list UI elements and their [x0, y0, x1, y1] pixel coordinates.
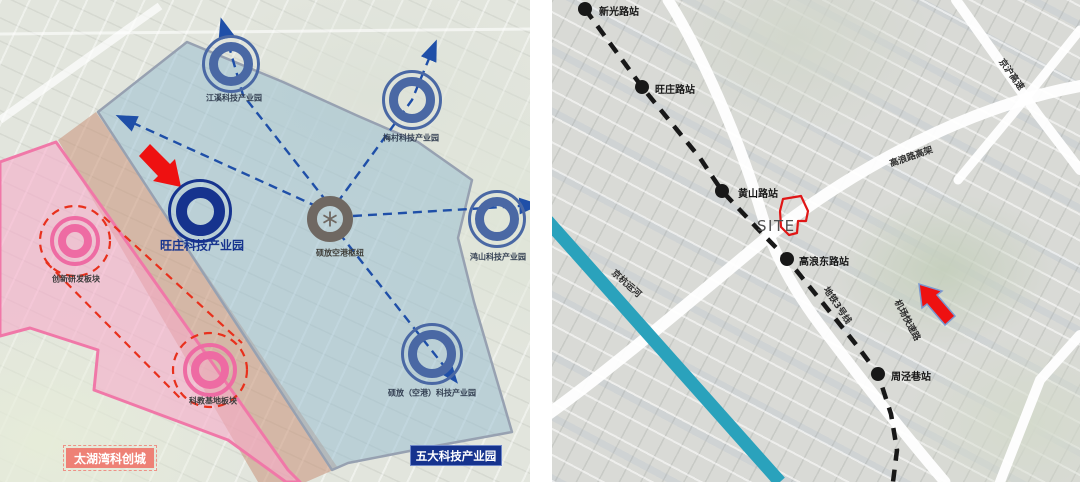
hub-label: 硕放空港枢纽 [316, 248, 364, 259]
block-label-innovation: 创新研发板块 [52, 274, 100, 285]
site-map-overlay [552, 0, 1080, 482]
block-ring-education [183, 343, 237, 397]
strategy-map-panel: 江溪科技产业园 梅村科技产业园 鸿山科技产业园 硕放（空港）科技产业园 旺庄科技… [0, 0, 530, 482]
block-ring-innovation [50, 216, 100, 266]
taihu-bay-badge: 太湖湾科创城 [66, 448, 154, 468]
station-dot-zhoujingxiang [871, 367, 885, 381]
park-ring-inner [475, 197, 519, 241]
park-label-hongshan: 鸿山科技产业园 [470, 252, 526, 263]
park-ring-wangzhuang [168, 179, 232, 243]
block-label-education: 科教基地板块 [189, 396, 237, 407]
block-ring-inner [58, 224, 92, 258]
two-panel-planning-map: 江溪科技产业园 梅村科技产业园 鸿山科技产业园 硕放（空港）科技产业园 旺庄科技… [0, 0, 1080, 482]
site-context-map-panel: 新光路站 旺庄路站 黄山路站 高浪东路站 周泾巷站 SITE 京杭运河 地铁3号… [552, 0, 1080, 482]
red-pointer-arrow [919, 284, 955, 325]
base-road [0, 29, 530, 34]
park-ring-inner [389, 77, 435, 123]
station-label-wangzhuang: 旺庄路站 [655, 81, 695, 96]
station-dot-gaolangdong [780, 252, 794, 266]
park-ring-inner [209, 42, 253, 86]
road-secondary [1000, 335, 1080, 482]
park-ring-inner [408, 330, 456, 378]
park-ring-jiangxi [202, 35, 260, 93]
park-label-meicun: 梅村科技产业园 [383, 133, 439, 144]
road-secondary [958, 30, 1080, 180]
park-label-shuofang: 硕放（空港）科技产业园 [388, 388, 476, 399]
park-ring-meicun [382, 70, 442, 130]
park-label-jiangxi: 江溪科技产业园 [206, 93, 262, 104]
park-ring-inner [176, 187, 225, 236]
station-label-huangshan: 黄山路站 [738, 185, 778, 200]
station-dot-huangshan [715, 184, 729, 198]
station-label-gaolangdong: 高浪东路站 [799, 253, 849, 268]
five-parks-badge: 五大科技产业园 [410, 445, 502, 466]
station-dot-wangzhuang [635, 80, 649, 94]
park-ring-hongshan [468, 190, 526, 248]
station-dot-xinguang [578, 2, 592, 16]
park-label-wangzhuang: 旺庄科技产业园 [160, 237, 244, 254]
park-ring-shuofang [401, 323, 463, 385]
site-label: SITE [757, 217, 796, 235]
airport-hub-ring [307, 196, 353, 242]
block-ring-inner [191, 351, 229, 389]
station-label-xinguang: 新光路站 [599, 3, 639, 18]
metro-line-3 [585, 9, 897, 482]
station-label-zhoujingxiang: 周泾巷站 [891, 368, 931, 383]
asterisk-icon [321, 210, 339, 228]
